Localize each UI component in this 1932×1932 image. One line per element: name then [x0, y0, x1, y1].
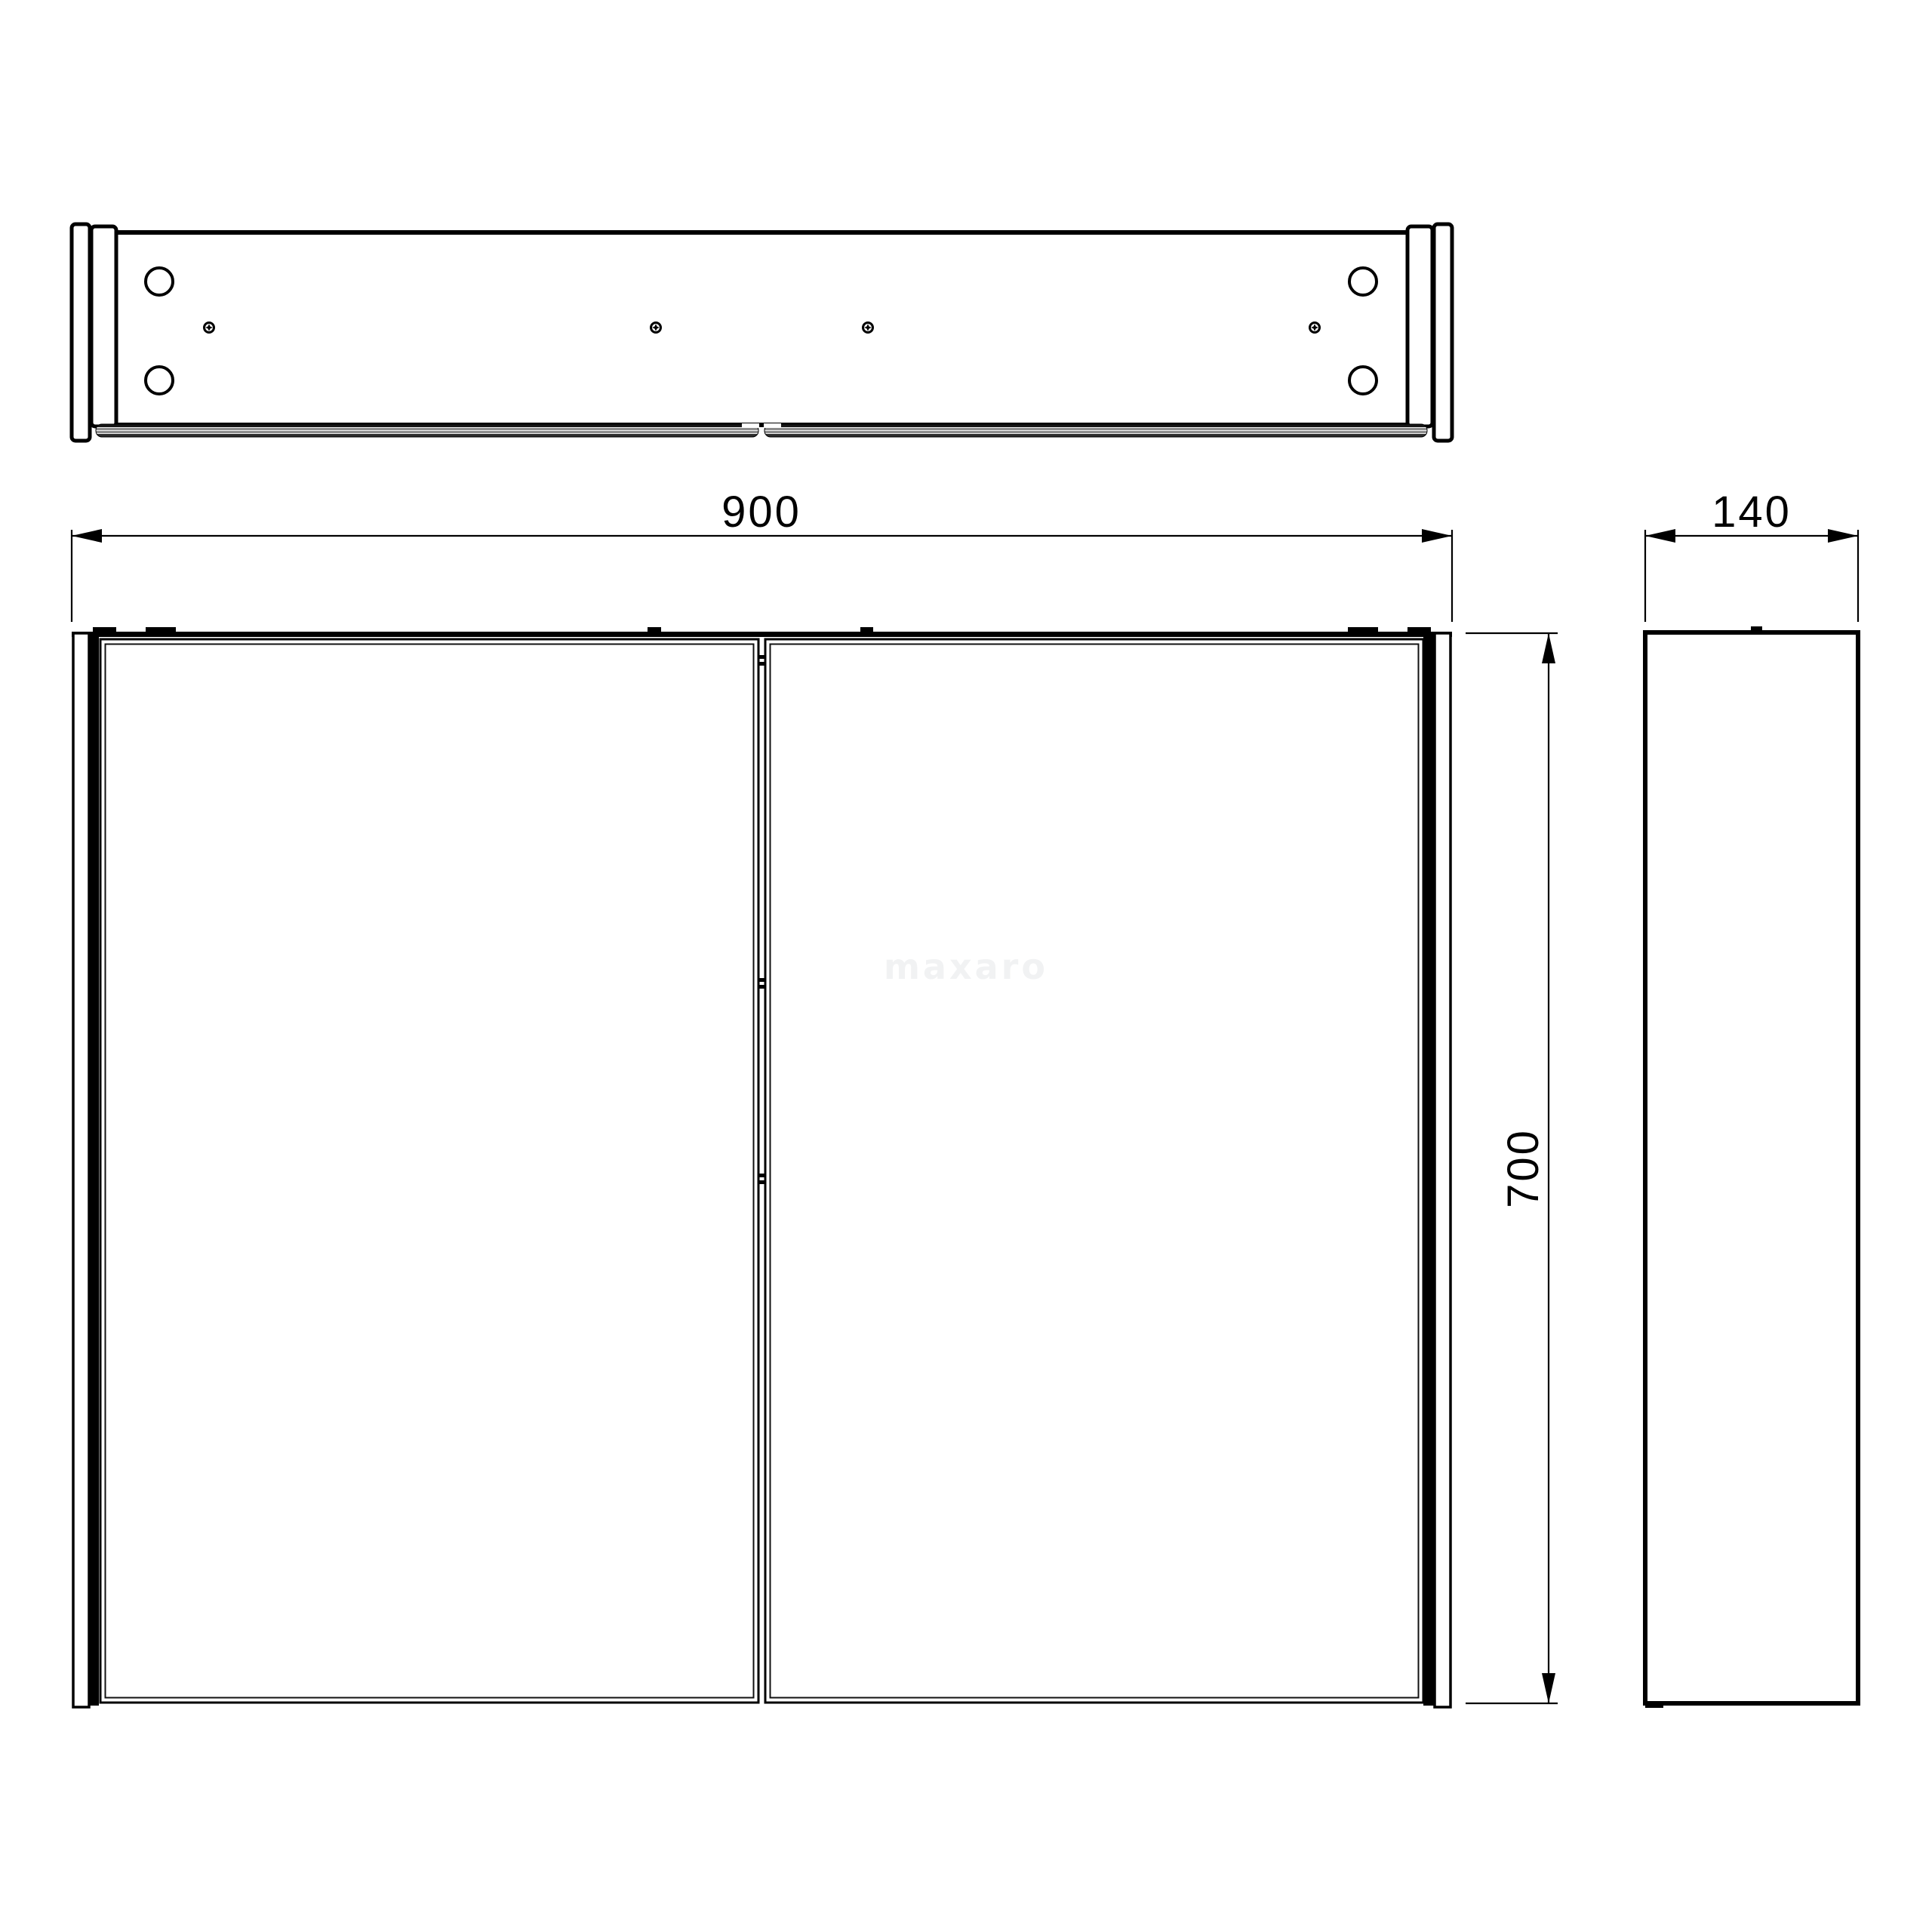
mirror-door-left	[100, 639, 758, 1703]
watermark: maxaro	[884, 946, 1048, 987]
top-view-left-outer-trim	[72, 224, 90, 441]
arrowhead-down-icon	[1542, 1673, 1555, 1703]
mirror-door-right	[765, 639, 1423, 1703]
dimension-depth: 140	[1645, 488, 1858, 622]
phillips-screw-top-icon	[863, 323, 873, 333]
phillips-screw-top-icon	[1310, 323, 1320, 333]
door-edge-joint-relief-right	[764, 423, 781, 428]
dimension-height-label: 700	[1499, 1128, 1548, 1208]
side-view	[1645, 626, 1858, 1708]
dimension-height: 700	[1466, 633, 1558, 1703]
side-view-cabinet-body	[1645, 632, 1858, 1703]
arrowhead-left-icon	[1645, 529, 1675, 543]
dimension-width: 900	[72, 488, 1452, 622]
front-view-left-door-gap	[88, 636, 99, 1706]
arrowhead-left-icon	[72, 529, 102, 543]
mounting-hole-icon	[146, 268, 173, 295]
dimension-depth-label: 140	[1712, 488, 1792, 537]
front-view: maxaro	[72, 627, 1452, 1707]
top-view-right-door-edge	[764, 424, 1427, 437]
phillips-screw-top-icon	[205, 323, 214, 333]
top-view-cabinet-body	[115, 232, 1408, 425]
front-view-right-door-gap	[1423, 636, 1434, 1706]
arrowhead-right-icon	[1828, 529, 1858, 543]
arrowhead-right-icon	[1422, 529, 1452, 543]
mounting-hole-icon	[1349, 367, 1377, 394]
arrowhead-up-icon	[1542, 633, 1555, 663]
side-view-top-clip	[1751, 626, 1762, 632]
door-centre-hinge-marks	[759, 655, 764, 1184]
mounting-hole-icon	[146, 367, 173, 394]
top-view-left-door-edge	[96, 424, 758, 437]
top-view-right-inner-trim	[1407, 226, 1432, 426]
front-view-left-trim	[73, 633, 89, 1707]
front-view-top-edge	[72, 632, 1452, 637]
dimension-width-label: 900	[721, 488, 801, 537]
front-view-mounting-clips	[93, 627, 1431, 632]
phillips-screw-top-icon	[651, 323, 661, 333]
top-view-right-outer-trim	[1434, 224, 1452, 441]
side-view-door-bottom-edge	[1645, 1702, 1663, 1708]
technical-drawing: maxaro 900 140 700	[0, 0, 1932, 1932]
front-view-right-trim	[1435, 633, 1451, 1707]
mounting-hole-icon	[1349, 268, 1377, 295]
top-view	[72, 224, 1452, 441]
door-edge-joint-relief-left	[742, 423, 759, 428]
top-view-left-inner-trim	[91, 226, 116, 426]
